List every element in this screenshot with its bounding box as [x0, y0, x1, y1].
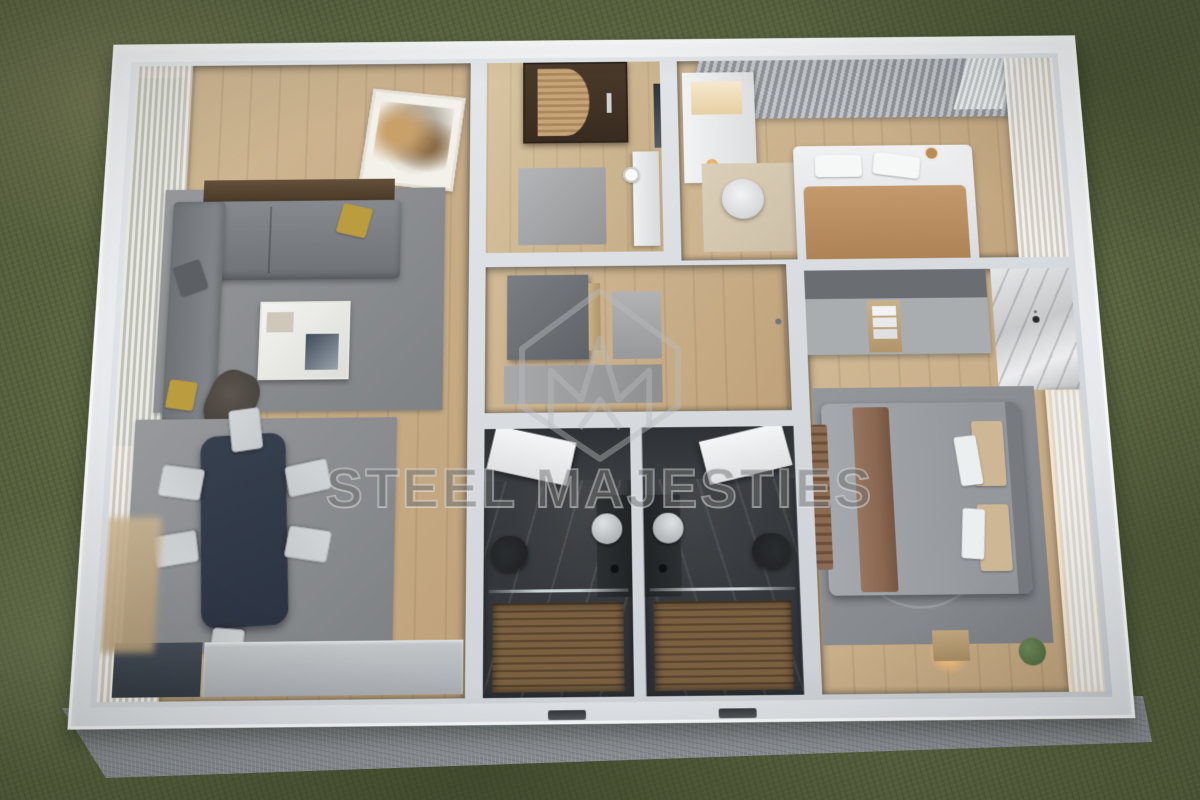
coffee-table-decor — [305, 334, 339, 371]
entry-shelf — [633, 151, 661, 246]
dining-chair — [157, 464, 205, 501]
hallway-runner-rug — [503, 364, 663, 404]
shower-wood-floor — [654, 601, 794, 691]
interior-walls — [90, 53, 1113, 708]
yellow-pillow — [164, 379, 197, 411]
kitchen-counter — [202, 639, 464, 697]
faucet — [658, 564, 666, 572]
nightstand — [932, 630, 971, 662]
room-kids-bedroom — [676, 58, 1069, 261]
coffee-table — [257, 301, 350, 380]
floor-plan-model — [67, 35, 1135, 729]
wall-vent — [719, 708, 757, 718]
entry-rug — [518, 167, 607, 245]
white-pillow — [961, 508, 984, 560]
leaning-mirror — [653, 84, 661, 148]
shower-glass-partition — [649, 587, 795, 592]
camel-blanket — [803, 185, 970, 259]
marble-accent-wall — [990, 268, 1080, 390]
coffee-table-books — [266, 312, 294, 333]
room-inner-hallway — [485, 264, 792, 414]
round-mirror — [653, 513, 684, 544]
front-door — [523, 62, 628, 143]
hallway-cabinet — [507, 275, 589, 360]
wall-clock — [623, 167, 640, 183]
pillow — [815, 155, 863, 178]
vanity-counter — [643, 495, 682, 597]
room-bathroom-left — [483, 427, 634, 698]
brown-throw-blanket — [852, 407, 898, 591]
front-door-slat-panel — [537, 69, 590, 137]
room-entry-hall — [486, 62, 664, 254]
toilet — [491, 536, 528, 571]
single-bed — [793, 145, 980, 260]
shelf-light — [691, 81, 742, 114]
wall-art-frame — [359, 88, 466, 191]
wall-vent — [548, 710, 586, 720]
paneled-headboard-wall — [1045, 389, 1106, 691]
open-shelf-clothes — [867, 300, 903, 353]
front-door-handle — [607, 93, 612, 113]
blurred-foreground-cabinet — [100, 517, 162, 653]
room-bathroom-right — [642, 426, 804, 696]
sheer-curtains-right — [1003, 58, 1069, 257]
hallway-runner-rug — [612, 291, 662, 359]
toilet — [751, 533, 791, 568]
vanity-counter — [596, 495, 633, 597]
sofa-console-table — [203, 179, 395, 202]
wardrobe-cabinets — [804, 269, 991, 355]
room-master-bedroom — [804, 268, 1106, 694]
pillow — [872, 152, 921, 180]
faucet — [611, 565, 619, 573]
bedroom-door-handle — [775, 319, 781, 325]
teddy-bear — [925, 147, 937, 158]
dining-chair — [228, 407, 264, 453]
dining-chair — [283, 525, 332, 563]
shower-wood-floor — [492, 602, 625, 692]
room-living-dining — [96, 64, 470, 702]
double-bed — [821, 402, 1034, 596]
dining-table — [200, 432, 288, 630]
